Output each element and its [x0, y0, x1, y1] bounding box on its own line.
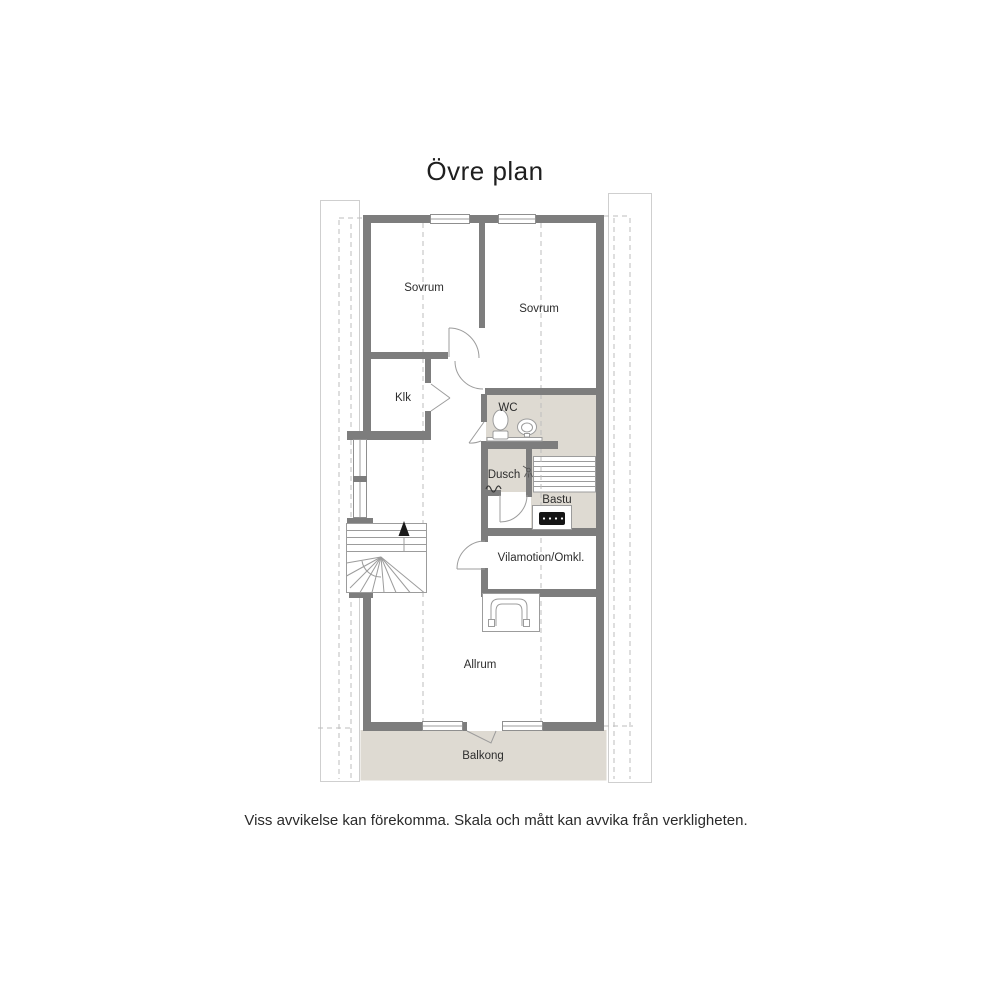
wall-klk-bottom: [347, 431, 431, 440]
wall-klk-right-b: [425, 411, 431, 440]
fireplace-icon: [483, 594, 540, 632]
door-sovrum2: [455, 361, 483, 389]
label-sovrum-1: Sovrum: [404, 282, 444, 294]
window-left-pair: [353, 440, 367, 518]
label-allrum: Allrum: [464, 659, 497, 671]
wall-top: [363, 215, 604, 223]
balcony-door-opening: [467, 722, 503, 731]
door-wc: [469, 422, 484, 443]
label-klk: Klk: [395, 392, 411, 404]
wall-bedroom-divider: [479, 222, 485, 328]
window-top-2: [499, 215, 536, 224]
floor-plan-page: Övre plan: [0, 0, 992, 992]
label-wc: WC: [498, 402, 517, 414]
label-sovrum-2: Sovrum: [519, 303, 559, 315]
window-bottom-1: [423, 722, 463, 731]
door-vilamotion: [457, 541, 485, 569]
wall-left-lower: [363, 589, 371, 730]
wall-sovrum1-bottom: [367, 352, 448, 359]
floor-plan-drawing: Sovrum Sovrum Klk WC Dusch Bastu Vilamot…: [0, 0, 992, 992]
label-balkong: Balkong: [462, 750, 504, 762]
door-sovrum1: [449, 328, 479, 358]
door-dusch: [500, 495, 527, 522]
label-vilamotion: Vilamotion/Omkl.: [498, 552, 585, 564]
wall-wc-top: [485, 388, 604, 395]
wall-right: [596, 215, 604, 730]
window-top-1: [431, 215, 470, 224]
toilet-icon: [493, 410, 508, 439]
sauna-heater-icon: [533, 506, 572, 530]
wall-dusch-right: [526, 448, 532, 497]
wall-dusch-bottom-stub: [481, 490, 501, 496]
wall-wc-bottom: [481, 441, 558, 449]
disclaimer-text: Viss avvikelse kan förekomma. Skala och …: [0, 812, 992, 829]
wall-left-upper: [363, 215, 371, 431]
door-klk: [431, 384, 450, 411]
sauna-benches: [534, 457, 596, 493]
stairs: [347, 521, 427, 593]
label-dusch: Dusch: [488, 469, 521, 481]
wall-wc-left: [481, 394, 487, 422]
wall-klk-right-a: [425, 358, 431, 383]
window-bottom-2: [503, 722, 543, 731]
label-bastu: Bastu: [542, 494, 571, 506]
